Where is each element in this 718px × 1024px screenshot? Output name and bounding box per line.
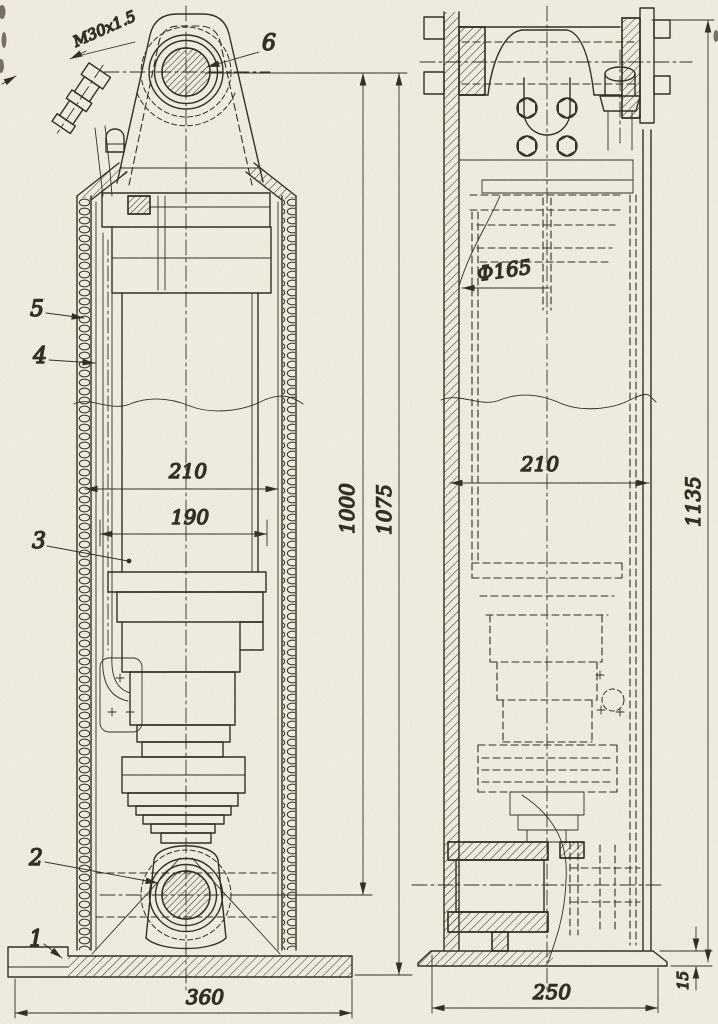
technical-drawing: 210 190 360 1000 1075 210 Ф165 250 15 11… [0,0,718,1024]
drawing-sheet: 210 190 360 1000 1075 210 Ф165 250 15 11… [0,0,718,1024]
paper-texture [0,0,718,1024]
